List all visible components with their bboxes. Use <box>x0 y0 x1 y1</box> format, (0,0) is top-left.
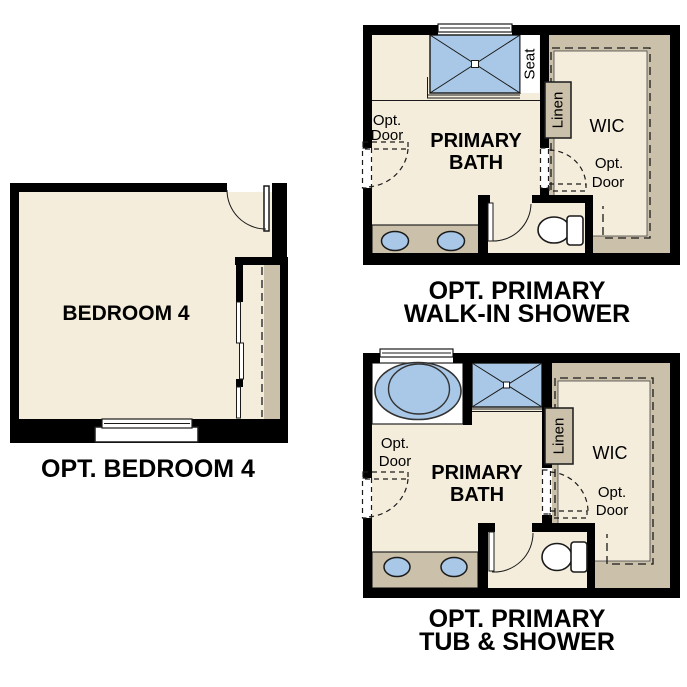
opt-door-left-label: Opt. <box>381 435 409 452</box>
bathtub <box>372 363 463 425</box>
bath-window <box>380 349 453 357</box>
shower <box>472 363 542 412</box>
bedroom-caption: OPT. BEDROOM 4 <box>41 455 255 483</box>
primary-bath-label: BATH <box>450 484 504 506</box>
wic-label: WIC <box>593 443 628 463</box>
bedroom-plan: BEDROOM 4 OPT. BEDROOM 4 <box>10 183 288 483</box>
linen-label: Linen <box>551 418 568 455</box>
water-closet <box>478 523 595 598</box>
walk-in-shower <box>430 35 520 93</box>
bedroom-door-leaf <box>264 186 269 231</box>
opt-door-right-label: Opt. <box>595 155 623 172</box>
floor-plan-page: BEDROOM 4 OPT. BEDROOM 4 <box>0 0 687 687</box>
opt-door-right-label: Opt. <box>598 484 626 501</box>
toilet <box>538 216 583 245</box>
floor-plan-drawing: BEDROOM 4 OPT. BEDROOM 4 <box>0 0 687 687</box>
shower-drain <box>472 61 479 68</box>
linen-label: Linen <box>550 92 567 129</box>
primary-bath-label: PRIMARY <box>430 130 522 152</box>
opt-door-right-label: Door <box>596 502 629 519</box>
tub-shower-caption: TUB & SHOWER <box>419 628 615 656</box>
closet-carpet <box>264 265 280 419</box>
wic-label: WIC <box>590 116 625 136</box>
sink <box>441 558 467 577</box>
wc-door-leaf <box>489 532 494 571</box>
shower-drain <box>504 382 510 388</box>
opt-door-right-label: Door <box>592 174 625 191</box>
seat-label: Seat <box>522 48 539 80</box>
bath-window <box>438 24 512 32</box>
water-closet <box>478 195 593 253</box>
sink <box>382 232 409 251</box>
tub-shower-plan: Linen WIC Opt. Door Opt. Door PRIMARY BA… <box>363 349 681 656</box>
sink <box>438 232 465 251</box>
opt-door-left-label: Door <box>379 453 412 470</box>
sink <box>384 558 410 577</box>
walk-in-shower-plan: Seat Linen WIC Opt. Door Opt. Door PRIMA… <box>363 24 681 328</box>
bedroom-window <box>95 419 198 442</box>
bedroom-room-label: BEDROOM 4 <box>62 302 190 325</box>
walk-in-shower-caption: WALK-IN SHOWER <box>404 300 630 328</box>
wc-door-leaf <box>488 203 493 241</box>
opt-door-left-label: Door <box>371 127 404 144</box>
primary-bath-label: BATH <box>449 152 503 174</box>
primary-bath-label: PRIMARY <box>431 462 523 484</box>
toilet <box>542 542 587 572</box>
